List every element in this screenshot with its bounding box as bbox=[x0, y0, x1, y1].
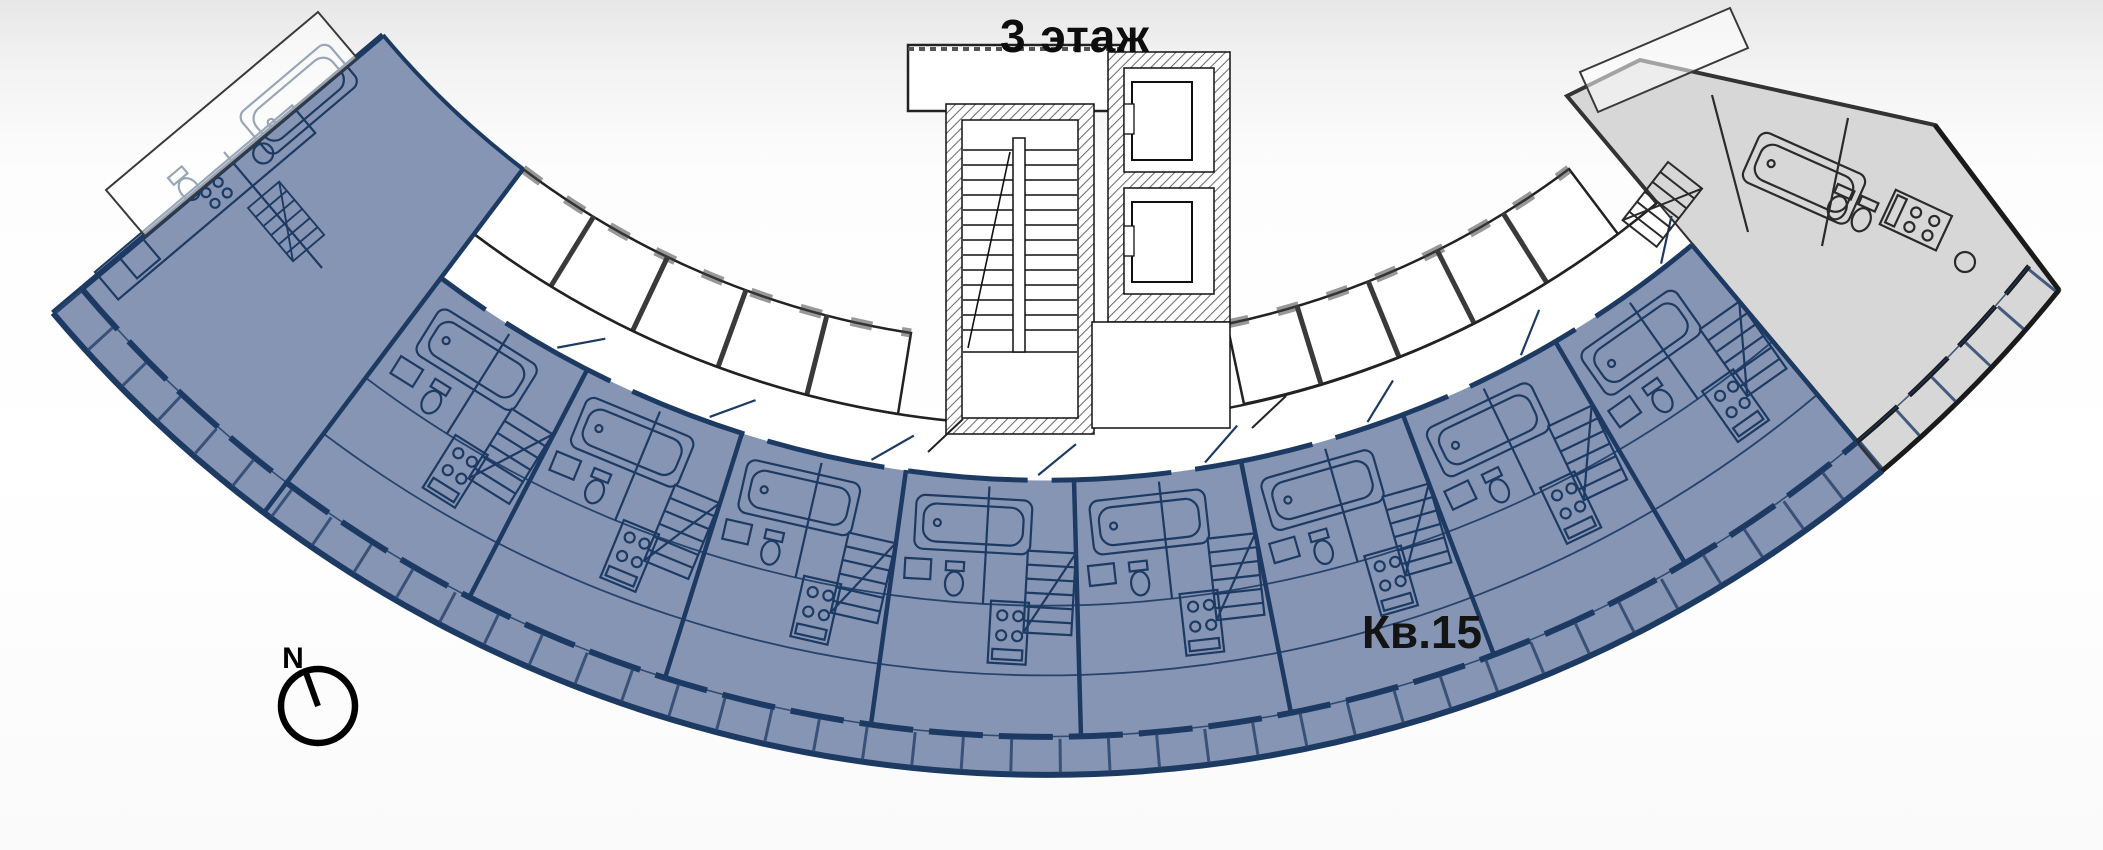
north-label: N bbox=[282, 642, 304, 675]
elevator-shaft-1 bbox=[1124, 68, 1214, 172]
compass-needle bbox=[305, 670, 318, 706]
floor-title: 3 этаж bbox=[1000, 10, 1150, 62]
floorplan-page: 3 этаж Кв.15 N bbox=[0, 0, 2103, 850]
north-compass: N bbox=[281, 642, 355, 743]
stair-core bbox=[908, 45, 1286, 452]
elevator-shaft-2 bbox=[1124, 188, 1214, 294]
core-lobby bbox=[1092, 322, 1230, 428]
floor-plan-svg: 3 этаж Кв.15 N bbox=[0, 0, 2103, 850]
stair-stringer bbox=[1013, 138, 1025, 352]
apartment-label[interactable]: Кв.15 bbox=[1362, 606, 1482, 658]
